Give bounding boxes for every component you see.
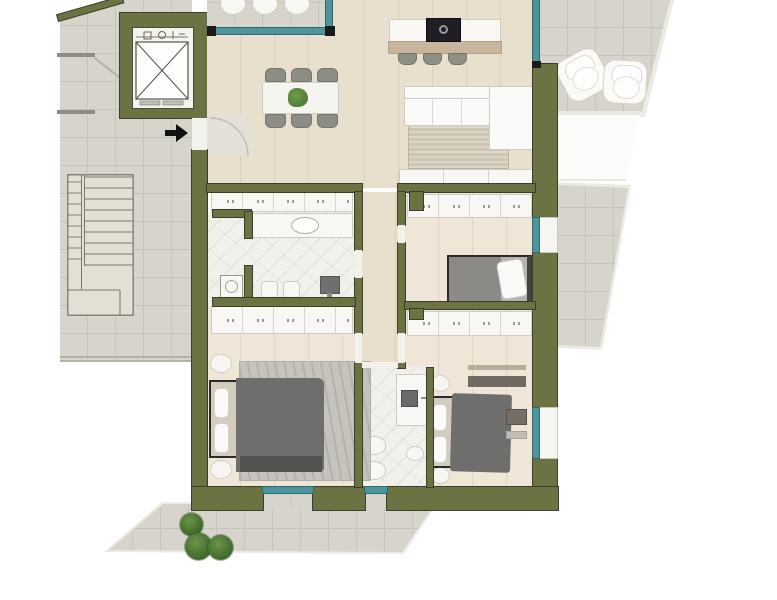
bathroom2-door-opening <box>362 362 398 368</box>
dining-chair-3 <box>317 68 338 82</box>
window-bedroom1-south <box>263 487 313 493</box>
terrace-right-mid-floor <box>558 185 632 347</box>
window-post-left <box>207 26 216 36</box>
sofa-cushion-line-1 <box>432 99 433 125</box>
bathroom1-door-opening <box>355 250 362 278</box>
floor-plan <box>0 0 777 600</box>
armchair-seat <box>612 75 640 99</box>
lobby-wall-stub-upper <box>57 53 95 57</box>
bedroom1-nightstand-top <box>210 354 232 373</box>
sideboard-divider-2 <box>488 170 489 184</box>
sofa-chaise <box>489 86 534 150</box>
dining-chair-1 <box>265 68 286 82</box>
bed2-duvet <box>450 393 512 473</box>
window-living-top-horizontal <box>214 28 327 34</box>
bedroom-mid-closet-run <box>407 194 533 218</box>
bedroom2-shelf-dark <box>468 376 526 387</box>
bathroom2-basin <box>406 446 424 461</box>
bed2-pillow-1 <box>433 404 447 431</box>
bar-stool-1 <box>398 53 417 65</box>
window-bathroom2-south <box>365 487 387 493</box>
sofa-seat <box>404 98 493 126</box>
tv-sideboard <box>399 169 533 185</box>
wall-corridor-east-a <box>398 192 405 225</box>
wall-corridor-west-b <box>355 278 362 333</box>
bathroom2-faucet <box>421 397 426 399</box>
wall-bedroom-mid-south <box>405 302 535 309</box>
bar-stool-3 <box>448 53 467 65</box>
tile-under-window-2 <box>365 492 387 508</box>
lobby-boundary-line-1 <box>60 356 192 358</box>
dining-chair-6 <box>317 114 338 128</box>
wall-pier-midbed-south <box>410 309 423 319</box>
bed1-pillow-1 <box>214 388 229 418</box>
bedroom1-nightstand-bottom <box>210 460 232 479</box>
tile-under-window-1 <box>263 492 313 508</box>
wall-corridor-west-a <box>355 192 362 250</box>
sideboard-divider-1 <box>443 170 444 184</box>
corridor-floor <box>362 192 398 368</box>
staircase <box>67 174 134 316</box>
washing-machine-drum <box>225 280 238 293</box>
wall-bottom-pier-b <box>313 487 365 510</box>
staircase-drawing <box>67 174 134 316</box>
lobby-boundary-line-2 <box>60 360 192 362</box>
dining-chair-2 <box>291 68 312 82</box>
bedroom-mid-door-opening <box>398 225 405 243</box>
wall-corridor-east-b <box>398 243 405 333</box>
wall-bathroom2-east <box>427 368 433 487</box>
bathroom2-sink <box>402 391 417 406</box>
wall-living-south-left <box>207 184 362 192</box>
wall-corridor-west-c <box>355 363 362 487</box>
bed2-pillow-2 <box>433 436 447 463</box>
window-sill-bedroom-mid <box>539 218 557 252</box>
window-post-right <box>532 61 541 68</box>
wall-bathroom1-stub-vertical-b <box>245 266 252 300</box>
bedroom2-nightstand-top <box>431 375 450 392</box>
dining-chair-4 <box>265 114 286 128</box>
sofa-cushion-line-2 <box>461 99 462 125</box>
wall-bathroom1-stub-vertical-a <box>245 212 252 238</box>
bathroom1-sink <box>291 217 319 234</box>
bedroom1-door-opening <box>355 333 362 363</box>
wall-right-upper <box>533 64 557 218</box>
bedroom2-dresser <box>507 410 526 424</box>
shower-column <box>321 277 339 293</box>
bedroom2-shelf-light <box>468 365 526 370</box>
window-living-top-vertical <box>326 0 332 28</box>
wall-right-middle <box>533 252 557 408</box>
entry-arrow <box>165 124 189 142</box>
wall-pier-midbed-north <box>410 192 423 210</box>
entry-arrow-head <box>176 124 188 142</box>
bed-mid-duvet <box>449 257 501 301</box>
bedroom2-bench <box>507 432 526 438</box>
wall-bottom-pier-c <box>387 487 558 510</box>
window-living-right <box>533 0 539 64</box>
bar-stool-2 <box>423 53 442 65</box>
wall-bottom-pier-a <box>192 487 263 510</box>
wall-corridor-east-c <box>398 363 405 368</box>
table-plant <box>288 88 308 107</box>
bedroom2-nightstand-bottom <box>431 467 450 484</box>
window-bedroom2 <box>533 408 539 458</box>
bedroom1-closet-run <box>211 306 353 334</box>
entry-door-opening <box>192 118 207 150</box>
elevator-symbol <box>133 28 192 107</box>
entry-door-swing-arc <box>209 117 249 157</box>
cooktop-burner <box>439 25 448 34</box>
bedroom2-closet-run <box>407 311 533 336</box>
dining-chair-5 <box>291 114 312 128</box>
bed1-duvet-fold <box>240 456 322 472</box>
window-bedroom-mid <box>533 218 539 252</box>
kitchen-island-wood-front <box>389 42 501 53</box>
terrace-armchair-2 <box>602 59 648 105</box>
entry-arrow-shaft <box>165 130 176 136</box>
wall-left-exterior <box>192 150 207 510</box>
hallway-closet-run <box>211 190 353 212</box>
window-sill-bedroom2 <box>539 408 557 458</box>
bed1-pillow-2 <box>214 423 229 453</box>
lobby-wall-stub-lower <box>57 110 95 114</box>
window-post-corner <box>325 26 335 36</box>
bedroom2-door-opening <box>398 333 405 363</box>
wall-bathroom1-south <box>213 298 355 306</box>
elevator-cabin <box>132 27 194 109</box>
terrace-bottom-floor <box>105 504 435 556</box>
bush-3 <box>208 535 233 560</box>
wall-living-south-right <box>398 184 535 192</box>
